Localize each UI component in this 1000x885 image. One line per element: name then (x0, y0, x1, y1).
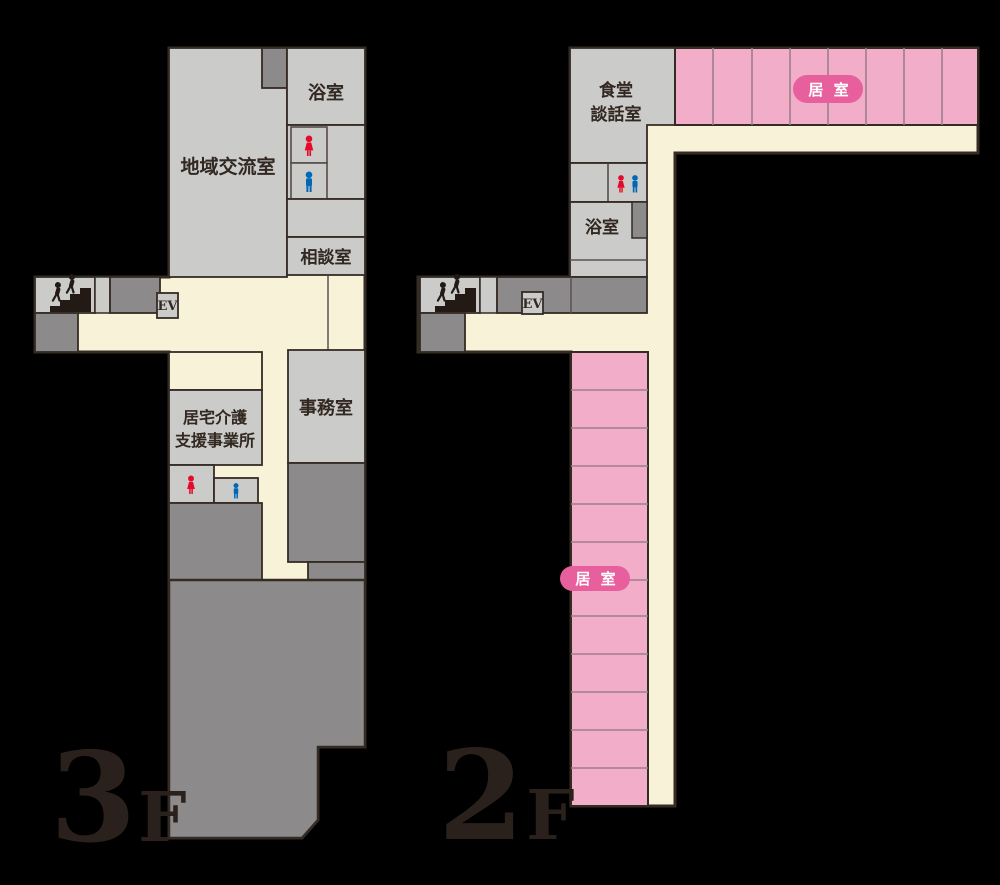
label-elevator-2f: EV (523, 297, 544, 312)
label-bath-2f: 浴室 (585, 217, 619, 237)
living-badge-side: 居 室 (560, 566, 630, 591)
label-office: 事務室 (299, 397, 353, 418)
dark-block-bottom-3f (169, 580, 365, 838)
floor-number-2f: 2F (438, 724, 575, 869)
label-dining-line1: 食堂 (599, 80, 633, 100)
dark-area-right-3f (288, 463, 365, 562)
label-dining-line2: 談話室 (591, 104, 642, 124)
label-bath-3f: 浴室 (308, 82, 344, 103)
label-homecare-line2: 支援事業所 (174, 431, 255, 450)
floor-plan-3f: 地域交流室 浴室 相談室 居宅介護 支援事業所 事務室 EV 3F (35, 48, 365, 871)
landing-strip-2f (480, 277, 497, 313)
bath-notch-2f (632, 202, 647, 238)
label-homecare-line1: 居宅介護 (183, 408, 248, 427)
living-badge-top: 居 室 (793, 75, 863, 103)
floor-2f-outline (418, 48, 978, 806)
room-community-notch (262, 48, 287, 88)
floor-number-3f-suffix: F (138, 778, 186, 858)
dark-box-under-stairs-3f (35, 313, 78, 352)
dark-area-left-3f (169, 503, 262, 580)
label-consult: 相談室 (301, 247, 352, 267)
label-community: 地域交流室 (180, 155, 275, 178)
floor-number-3f: 3F (50, 726, 187, 871)
elevator-shaft-3f (110, 277, 160, 313)
label-elevator-3f: EV (158, 299, 179, 314)
storage-box-3f (287, 199, 365, 237)
living-badge-side-label: 居 室 (575, 570, 618, 588)
floor-plan-2f: 居 室 居 室 食堂 談話室 浴室 EV 2F (418, 48, 978, 869)
room-homecare (169, 390, 262, 465)
floor-number-3f-digit: 3 (50, 726, 136, 871)
floor-map: 地域交流室 浴室 相談室 居宅介護 支援事業所 事務室 EV 3F (0, 0, 1000, 885)
floor-number-2f-digit: 2 (438, 724, 524, 869)
living-badge-top-label: 居 室 (808, 81, 851, 99)
elevator-shaft-2f (497, 277, 647, 313)
dark-area-right-lower-3f (308, 562, 365, 580)
landing-strip-3f (95, 277, 110, 313)
floor-number-2f-suffix: F (526, 776, 574, 856)
dark-box-under-stairs-2f (420, 313, 465, 352)
homecare-entry-strip (169, 352, 262, 390)
floor-map-canvas: 地域交流室 浴室 相談室 居宅介護 支援事業所 事務室 EV 3F (0, 0, 1000, 885)
